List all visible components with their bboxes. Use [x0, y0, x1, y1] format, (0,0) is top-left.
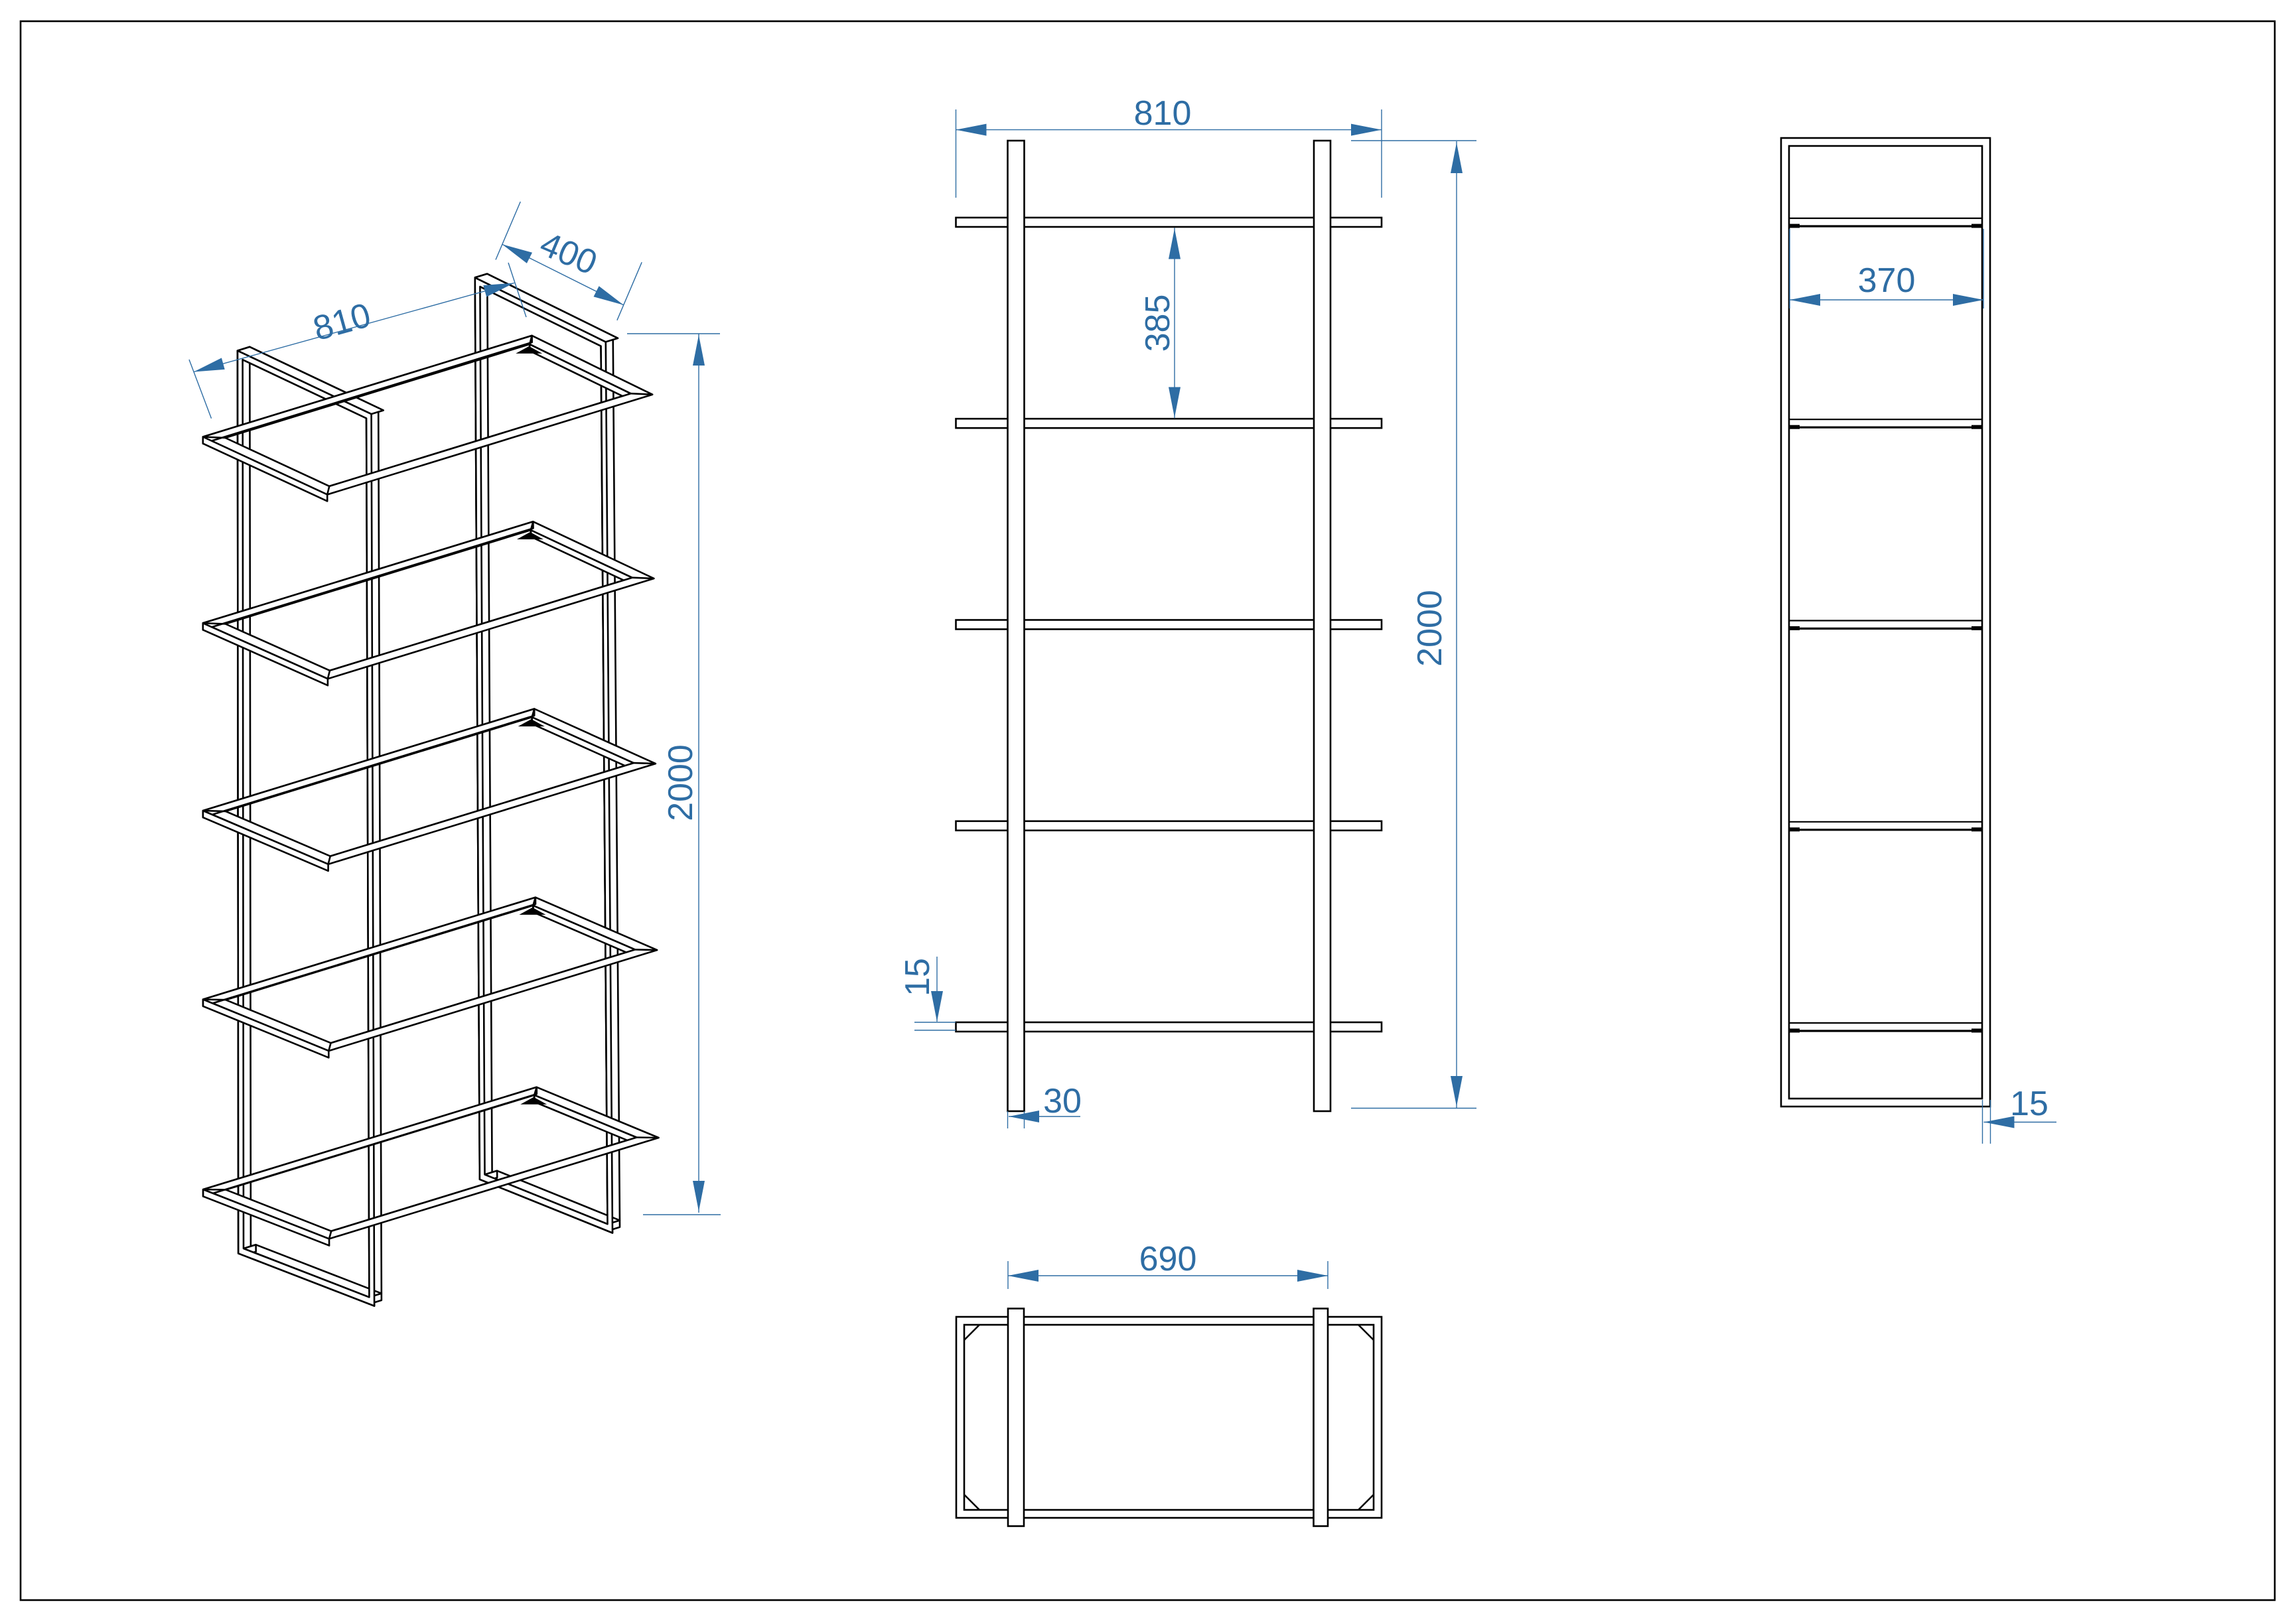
svg-text:810: 810 [1134, 94, 1192, 133]
svg-text:2000: 2000 [662, 744, 700, 821]
svg-text:15: 15 [2010, 1085, 2048, 1123]
svg-text:385: 385 [1139, 295, 1177, 352]
svg-text:30: 30 [1043, 1082, 1082, 1120]
svg-text:370: 370 [1858, 261, 1916, 300]
svg-text:690: 690 [1139, 1240, 1197, 1278]
svg-text:2000: 2000 [1411, 590, 1449, 667]
svg-text:15: 15 [898, 958, 937, 996]
